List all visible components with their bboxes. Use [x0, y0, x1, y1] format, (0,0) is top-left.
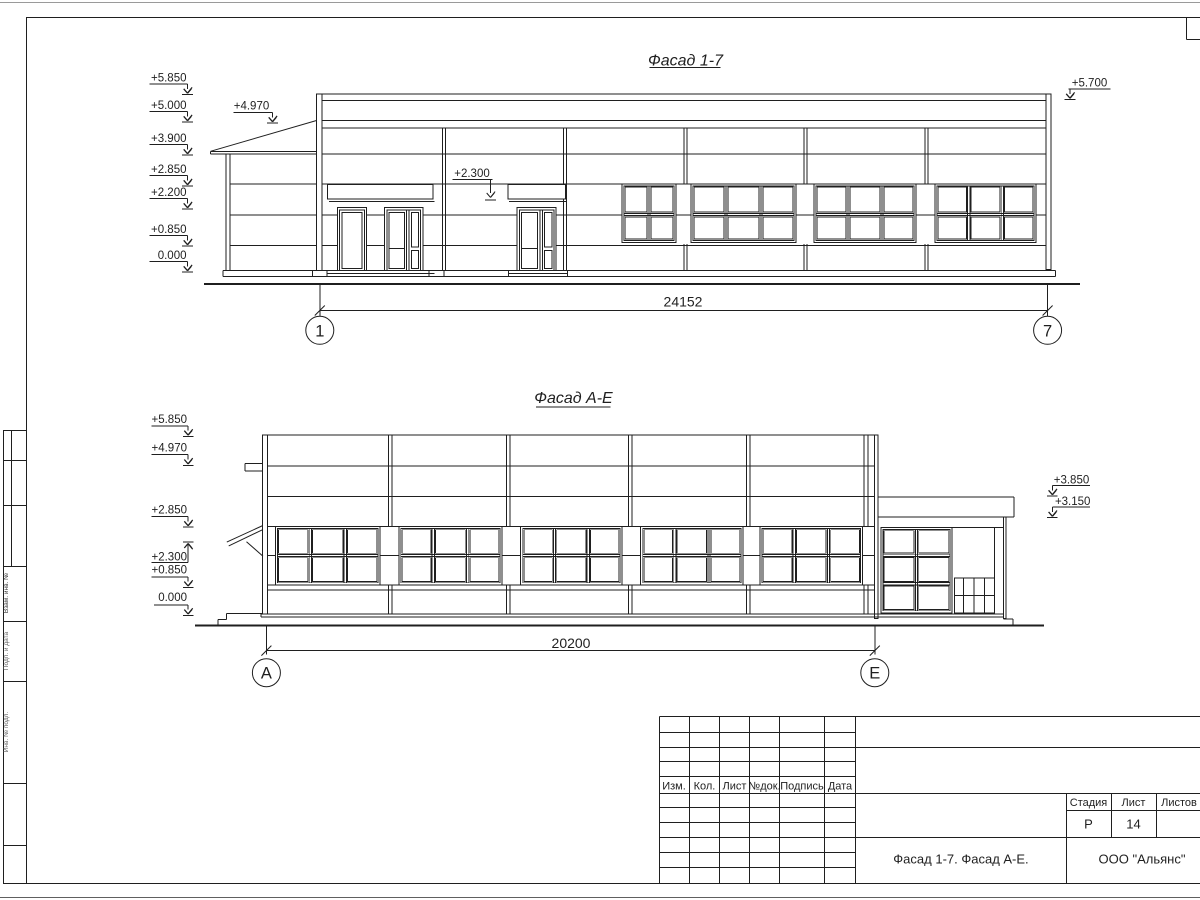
svg-text:+5.700: +5.700	[1072, 78, 1108, 90]
svg-text:+5.850: +5.850	[151, 73, 187, 85]
svg-text:Е: Е	[869, 665, 880, 683]
svg-text:Инв. № подл.: Инв. № подл.	[3, 712, 10, 753]
svg-text:Фасад 1-7: Фасад 1-7	[648, 53, 724, 70]
svg-text:+2.200: +2.200	[151, 187, 187, 199]
svg-text:Дата: Дата	[828, 781, 853, 793]
svg-text:+0.850: +0.850	[151, 224, 187, 236]
svg-text:Фасад 1-7. Фасад А-Е.: Фасад 1-7. Фасад А-Е.	[893, 852, 1028, 867]
svg-text:+2.300: +2.300	[152, 551, 188, 563]
svg-text:+2.300: +2.300	[454, 168, 490, 180]
svg-text:Подпись: Подпись	[780, 781, 824, 793]
svg-text:+3.850: +3.850	[1054, 474, 1090, 486]
svg-text:24152: 24152	[664, 294, 703, 310]
svg-text:№док.: №док.	[748, 781, 780, 793]
svg-text:Изм.: Изм.	[662, 781, 686, 793]
svg-text:Листов: Листов	[1161, 797, 1197, 809]
svg-text:Стадия: Стадия	[1070, 797, 1108, 809]
svg-text:Лист: Лист	[723, 781, 747, 793]
svg-text:1: 1	[315, 322, 324, 340]
svg-text:+3.150: +3.150	[1055, 496, 1091, 508]
svg-text:+4.970: +4.970	[234, 101, 270, 113]
svg-text:ООО "Альянс": ООО "Альянс"	[1099, 852, 1186, 867]
svg-text:+2.850: +2.850	[152, 505, 188, 517]
svg-text:+4.970: +4.970	[152, 443, 188, 455]
svg-text:+5.000: +5.000	[151, 100, 187, 112]
svg-text:Р: Р	[1084, 817, 1093, 832]
svg-text:+3.900: +3.900	[151, 133, 187, 145]
svg-text:Кол.: Кол.	[694, 781, 716, 793]
svg-text:Лист: Лист	[1122, 797, 1146, 809]
svg-text:0.000: 0.000	[158, 592, 187, 604]
svg-text:Подп. и дата: Подп. и дата	[3, 631, 10, 670]
svg-text:+5.850: +5.850	[152, 414, 188, 426]
svg-text:20200: 20200	[552, 635, 591, 651]
svg-text:Взам. инв. №: Взам. инв. №	[3, 573, 10, 613]
svg-text:+0.850: +0.850	[152, 565, 188, 577]
svg-text:0.000: 0.000	[158, 250, 187, 262]
svg-text:7: 7	[1043, 322, 1052, 340]
svg-text:Фасад А-Е: Фасад А-Е	[534, 390, 613, 407]
svg-text:+2.850: +2.850	[151, 164, 187, 176]
svg-text:14: 14	[1126, 817, 1140, 832]
svg-text:А: А	[261, 665, 272, 683]
